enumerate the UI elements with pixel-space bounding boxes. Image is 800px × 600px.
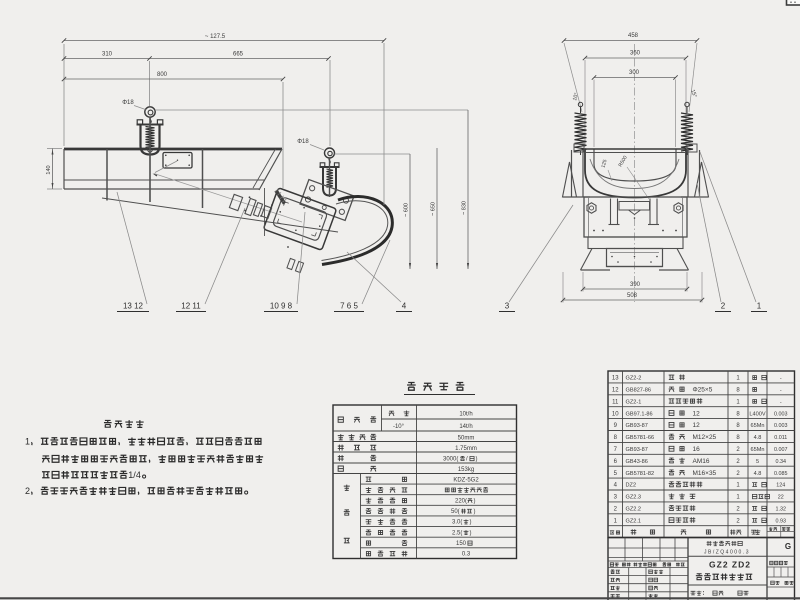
- svg-text:2: 2: [25, 486, 30, 496]
- svg-text:-: -: [780, 387, 782, 393]
- svg-text:10: 10: [612, 411, 619, 417]
- svg-text:GZ2.3: GZ2.3: [626, 495, 642, 501]
- svg-text:GZ2-1: GZ2-1: [626, 399, 642, 405]
- svg-text:5: 5: [756, 459, 759, 465]
- svg-text:M16×35: M16×35: [693, 470, 717, 477]
- svg-text:16: 16: [693, 446, 701, 453]
- svg-text:65Mn: 65Mn: [751, 447, 765, 453]
- svg-text:10 9 8: 10 9 8: [270, 302, 293, 311]
- svg-text:300: 300: [629, 70, 640, 76]
- svg-text:L400V: L400V: [749, 411, 765, 417]
- svg-text:GB97.1-86: GB97.1-86: [626, 411, 653, 417]
- svg-text:-: -: [780, 376, 782, 382]
- svg-text:12: 12: [693, 410, 701, 417]
- svg-text:GZ2-2: GZ2-2: [626, 376, 642, 382]
- svg-text:3000(: 3000(: [443, 457, 458, 463]
- svg-text:GB93-87: GB93-87: [626, 423, 648, 429]
- svg-text:1.75mm: 1.75mm: [455, 446, 477, 452]
- svg-text:Φ18: Φ18: [122, 100, 134, 106]
- svg-text:GB827-86: GB827-86: [626, 387, 652, 393]
- svg-text:DZ2: DZ2: [626, 483, 637, 489]
- svg-text:1.32: 1.32: [776, 506, 787, 512]
- svg-text:1: 1: [25, 437, 30, 447]
- svg-text:M12×25: M12×25: [693, 434, 717, 441]
- svg-text:0.007: 0.007: [774, 447, 788, 453]
- svg-text:0.003: 0.003: [774, 411, 788, 417]
- svg-text:~ 127.5: ~ 127.5: [205, 34, 226, 40]
- svg-text:22: 22: [778, 495, 784, 501]
- svg-text:Φ18: Φ18: [297, 139, 309, 145]
- svg-text:AM16: AM16: [693, 458, 710, 465]
- svg-text:13 12: 13 12: [123, 302, 144, 311]
- svg-text:~ 830: ~ 830: [462, 201, 468, 215]
- svg-text:140: 140: [46, 165, 52, 174]
- svg-text:50mm: 50mm: [458, 436, 475, 442]
- svg-text:65Mn: 65Mn: [751, 423, 765, 429]
- svg-text:GZ2.1: GZ2.1: [626, 518, 642, 524]
- svg-text:~ 650: ~ 650: [431, 202, 437, 216]
- svg-text:GB5781-66: GB5781-66: [626, 435, 655, 441]
- svg-text:0.34: 0.34: [776, 459, 787, 465]
- svg-text:): ): [470, 520, 472, 526]
- svg-text:): ): [476, 457, 478, 463]
- svg-text:12: 12: [612, 387, 619, 393]
- svg-text:800: 800: [157, 72, 168, 78]
- svg-text:50(: 50(: [451, 509, 460, 515]
- svg-text:2: 2: [721, 302, 726, 311]
- svg-text:153kg: 153kg: [458, 467, 474, 473]
- svg-text:GB93-87: GB93-87: [626, 447, 648, 453]
- svg-text:0.085: 0.085: [774, 471, 788, 477]
- svg-text:3: 3: [505, 302, 510, 311]
- svg-text:150: 150: [456, 541, 467, 547]
- svg-text:GB5781-82: GB5781-82: [626, 471, 655, 477]
- svg-text:GZ2.2: GZ2.2: [626, 506, 642, 512]
- svg-text:GB43-86: GB43-86: [626, 459, 648, 465]
- svg-text:2.5(: 2.5(: [452, 530, 462, 536]
- svg-text:4.8: 4.8: [754, 435, 762, 441]
- svg-text:Φ25×5: Φ25×5: [693, 387, 713, 394]
- svg-text:0.011: 0.011: [774, 435, 787, 441]
- svg-text:12 11: 12 11: [181, 302, 201, 311]
- svg-text:0.93: 0.93: [776, 518, 787, 524]
- svg-text:124: 124: [776, 483, 785, 489]
- svg-text:665: 665: [233, 52, 244, 58]
- svg-text:12: 12: [693, 422, 701, 429]
- svg-text:458: 458: [628, 33, 639, 39]
- svg-text:KDZ-5G2: KDZ-5G2: [453, 477, 479, 483]
- svg-text:360: 360: [630, 51, 641, 57]
- svg-text:-10°: -10°: [393, 424, 405, 430]
- svg-text:4: 4: [402, 302, 407, 311]
- svg-text:G: G: [785, 542, 791, 551]
- svg-text:13: 13: [612, 376, 619, 382]
- svg-text:): ): [470, 530, 472, 536]
- svg-text:7 6 5: 7 6 5: [340, 302, 358, 311]
- svg-text:): ): [474, 509, 476, 515]
- svg-text:220(: 220(: [455, 499, 467, 505]
- svg-text:0.003: 0.003: [774, 423, 788, 429]
- svg-text:1: 1: [757, 302, 762, 311]
- svg-text:~ 600: ~ 600: [404, 203, 410, 217]
- svg-text:3.0(: 3.0(: [452, 520, 462, 526]
- svg-text:4.8: 4.8: [754, 471, 762, 477]
- svg-text:GZ2 ZD2: GZ2 ZD2: [709, 560, 751, 570]
- svg-text:1/4: 1/4: [128, 470, 141, 480]
- svg-text:508: 508: [627, 293, 638, 299]
- svg-text:11: 11: [612, 399, 619, 405]
- svg-text:JB/ZQ4000.3: JB/ZQ4000.3: [704, 550, 750, 556]
- svg-text:-: -: [780, 399, 782, 405]
- svg-text:14t/h: 14t/h: [459, 424, 472, 430]
- svg-text:0.3: 0.3: [462, 552, 471, 558]
- svg-text:10t/h: 10t/h: [459, 412, 472, 418]
- svg-text:310: 310: [102, 52, 113, 58]
- svg-text:390: 390: [630, 282, 641, 288]
- svg-text:): ): [474, 499, 476, 505]
